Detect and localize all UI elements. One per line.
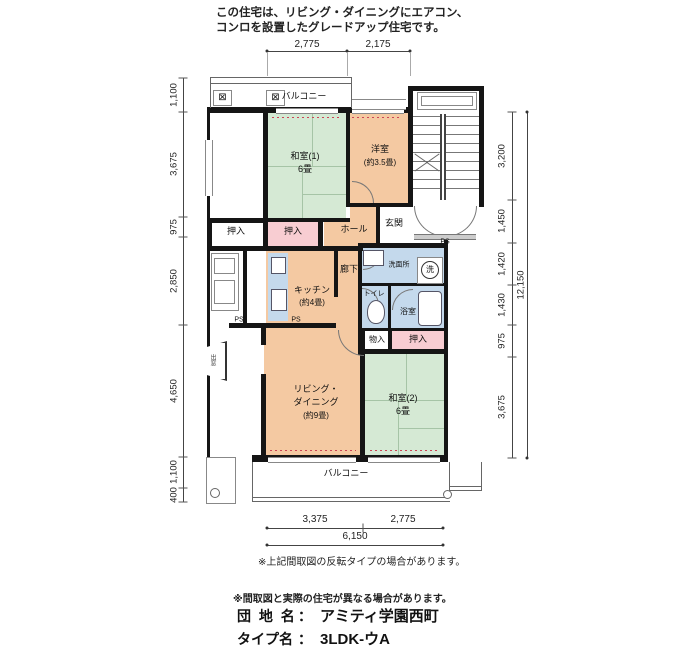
wall-segment: [346, 113, 350, 203]
dim-tick: [179, 112, 188, 113]
type-name-label: タイプ名: [237, 629, 293, 649]
living-label-3: (約9畳): [303, 411, 329, 421]
dim-left-2: 3,675: [169, 152, 180, 176]
note-differ: ※間取図と実際の住宅が異なる場合があります。: [233, 590, 452, 605]
japanese-room-1-label: 和室(1): [291, 151, 320, 163]
micro-dim: [370, 450, 440, 451]
wall-segment: [261, 374, 266, 462]
note-flip: ※上記間取図の反転タイプの場合があります。: [258, 553, 465, 568]
floorplan-page: この住宅は、リビング・ダイニングにエアコン、 コンロを設置したグレードアップ住宅…: [0, 0, 700, 650]
window: [268, 457, 356, 463]
estate-name-label: 団 地 名: [237, 606, 297, 626]
ledge: [352, 99, 406, 110]
washing-machine-icon: 洗: [421, 261, 439, 279]
wall-segment: [376, 203, 380, 245]
header-note-line1: この住宅は、リビング・ダイニングにエアコン、: [216, 4, 468, 20]
dim-bottom-2: 2,775: [390, 514, 415, 525]
dim-tick: [179, 457, 188, 458]
window: [205, 140, 213, 196]
meter-box: [214, 258, 235, 274]
dim-left-6: 1,100: [169, 460, 180, 484]
dim-tick: [526, 457, 529, 460]
closet-pink-top-label: 押入: [284, 226, 302, 238]
micro-dim: [352, 117, 402, 118]
dim-right-1: 3,200: [497, 144, 508, 168]
wall-segment: [207, 246, 363, 251]
western-room-size: (約3.5畳): [364, 158, 396, 168]
dim-tick: [526, 111, 529, 114]
dim-tick: [442, 544, 445, 547]
corridor-label: 廊下: [340, 264, 358, 276]
stair-landing-niche: [421, 96, 473, 106]
dim-top-2: 2,175: [365, 39, 390, 50]
balcony-rail: [481, 462, 482, 491]
dim-left-7: 400: [169, 487, 180, 503]
tatami-line: [302, 194, 346, 195]
dim-tick: [442, 527, 445, 530]
living-label-2: ダイニング: [293, 397, 338, 409]
washbasin: [363, 250, 384, 266]
dim-left-5: 4,650: [169, 379, 180, 403]
toilet-bowl: [367, 300, 385, 324]
dim-left-4: 2,850: [169, 269, 180, 293]
wall-segment: [389, 331, 392, 349]
dim-ext: [410, 52, 411, 76]
dim-right-total: 12,150: [516, 270, 527, 299]
closet-pink-bottom-label: 押入: [409, 334, 427, 346]
hall-label: ホール: [340, 224, 367, 236]
dim-line-bottom-total: [267, 545, 444, 546]
wall-segment: [334, 251, 338, 297]
wall-segment: [408, 86, 484, 91]
dim-left-3: 975: [169, 219, 180, 235]
dim-bottom-1: 3,375: [302, 514, 327, 525]
wall-segment: [358, 328, 448, 331]
dim-tick: [179, 325, 188, 326]
balcony-bottom-label: バルコニー: [324, 468, 369, 480]
balcony-rail: [210, 77, 352, 78]
bay-window-label: 出窓: [205, 347, 217, 373]
corridor-area: [336, 251, 360, 328]
toilet-label: トイレ: [364, 289, 385, 298]
meter-box: [214, 280, 235, 304]
closet-left-label: 押入: [227, 226, 245, 238]
dim-tick: [179, 237, 188, 238]
entrance-door-arc: [445, 206, 477, 237]
header-note-line2: コンロを設置したグレードアップ住宅です。: [216, 19, 445, 35]
lower-side-structure: [206, 457, 236, 504]
drain-circle: [210, 488, 220, 498]
dim-right-2: 1,450: [497, 209, 508, 233]
estate-name-separator: ：: [298, 606, 312, 626]
dim-line-right-total: [527, 112, 528, 458]
wall-segment: [207, 218, 350, 222]
dim-tick: [266, 527, 269, 530]
entrance-label: 玄関: [385, 218, 403, 230]
ps-label: PS: [234, 315, 243, 324]
dim-tick: [508, 325, 517, 326]
wall-segment: [479, 86, 484, 207]
balcony-top-label: バルコニー: [282, 91, 327, 103]
balcony-rail: [210, 77, 211, 108]
kitchen-stove: [271, 289, 287, 311]
balcony-rail: [252, 501, 450, 502]
type-name-separator: ：: [298, 629, 312, 649]
balcony-rail: [252, 497, 450, 498]
stair-treads: [413, 116, 479, 196]
japanese-room-2-size: 6畳: [396, 406, 410, 418]
dim-ext: [347, 52, 348, 76]
tatami-line: [398, 428, 444, 429]
dim-tick: [179, 78, 188, 79]
ps-label: PS: [291, 315, 300, 324]
balcony-drain: [443, 490, 452, 499]
dim-line-top: [267, 51, 411, 52]
living-label-1: リビング・: [293, 384, 338, 396]
balcony-rail: [449, 486, 482, 487]
wall-segment: [358, 349, 448, 354]
stair-stringer: [440, 114, 446, 200]
wall-segment: [261, 323, 266, 345]
micro-dim: [272, 117, 340, 118]
washroom-label: 洗面所: [389, 260, 410, 269]
western-room-label: 洋室: [371, 144, 389, 156]
kitchen-size: (約4畳): [299, 298, 325, 308]
dim-bottom-total: 6,150: [342, 531, 367, 542]
dim-left-1: 1,100: [169, 83, 180, 107]
dim-tick: [508, 458, 517, 459]
dim-tick: [179, 488, 188, 489]
wall-segment: [229, 323, 336, 328]
window: [368, 457, 440, 463]
estate-name-value: アミティ学園西町: [320, 605, 439, 626]
kitchen-sink: [271, 257, 286, 274]
balcony-rail: [252, 462, 253, 502]
dim-line-bottom: [267, 528, 444, 529]
japanese-room-2-label: 和室(2): [389, 393, 418, 405]
bathtub: [418, 291, 442, 326]
balcony-rail: [449, 490, 482, 491]
storage-label: 物入: [369, 335, 385, 345]
dim-tick: [508, 357, 517, 358]
japanese-room-1-size: 6畳: [298, 164, 312, 176]
dim-right-4: 1,430: [497, 293, 508, 317]
dim-tick: [266, 544, 269, 547]
type-name-value: 3LDK-ウA: [320, 628, 390, 649]
ac-unit-icon: ⊠: [213, 90, 232, 106]
dim-tick: [508, 243, 517, 244]
japanese-room-2: [365, 354, 444, 456]
dim-right-5: 975: [497, 333, 508, 349]
wall-segment: [318, 218, 323, 248]
balcony-rail: [210, 83, 352, 84]
wall-segment: [263, 112, 268, 222]
dim-tick: [179, 217, 188, 218]
dim-tick: [508, 200, 517, 201]
dim-line-left: [183, 78, 184, 502]
wall-segment: [358, 243, 448, 248]
dim-ext: [267, 52, 268, 76]
ps-label: PS: [440, 237, 449, 246]
entrance-door-arc: [414, 206, 446, 237]
dim-right-3: 1,420: [497, 252, 508, 276]
bath-label: 浴室: [400, 307, 416, 317]
micro-dim: [270, 450, 356, 451]
window: [276, 108, 338, 114]
dim-tick: [508, 112, 517, 113]
dim-tick: [179, 502, 188, 503]
dim-top-1: 2,775: [294, 39, 319, 50]
dim-right-6: 3,675: [497, 395, 508, 419]
kitchen-label: キッチン: [294, 285, 330, 297]
